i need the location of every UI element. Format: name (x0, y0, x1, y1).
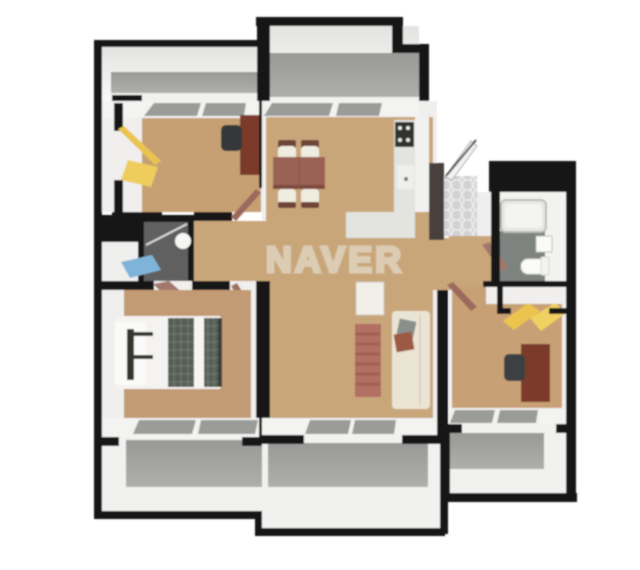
svg-text:NAVER: NAVER (266, 239, 404, 280)
